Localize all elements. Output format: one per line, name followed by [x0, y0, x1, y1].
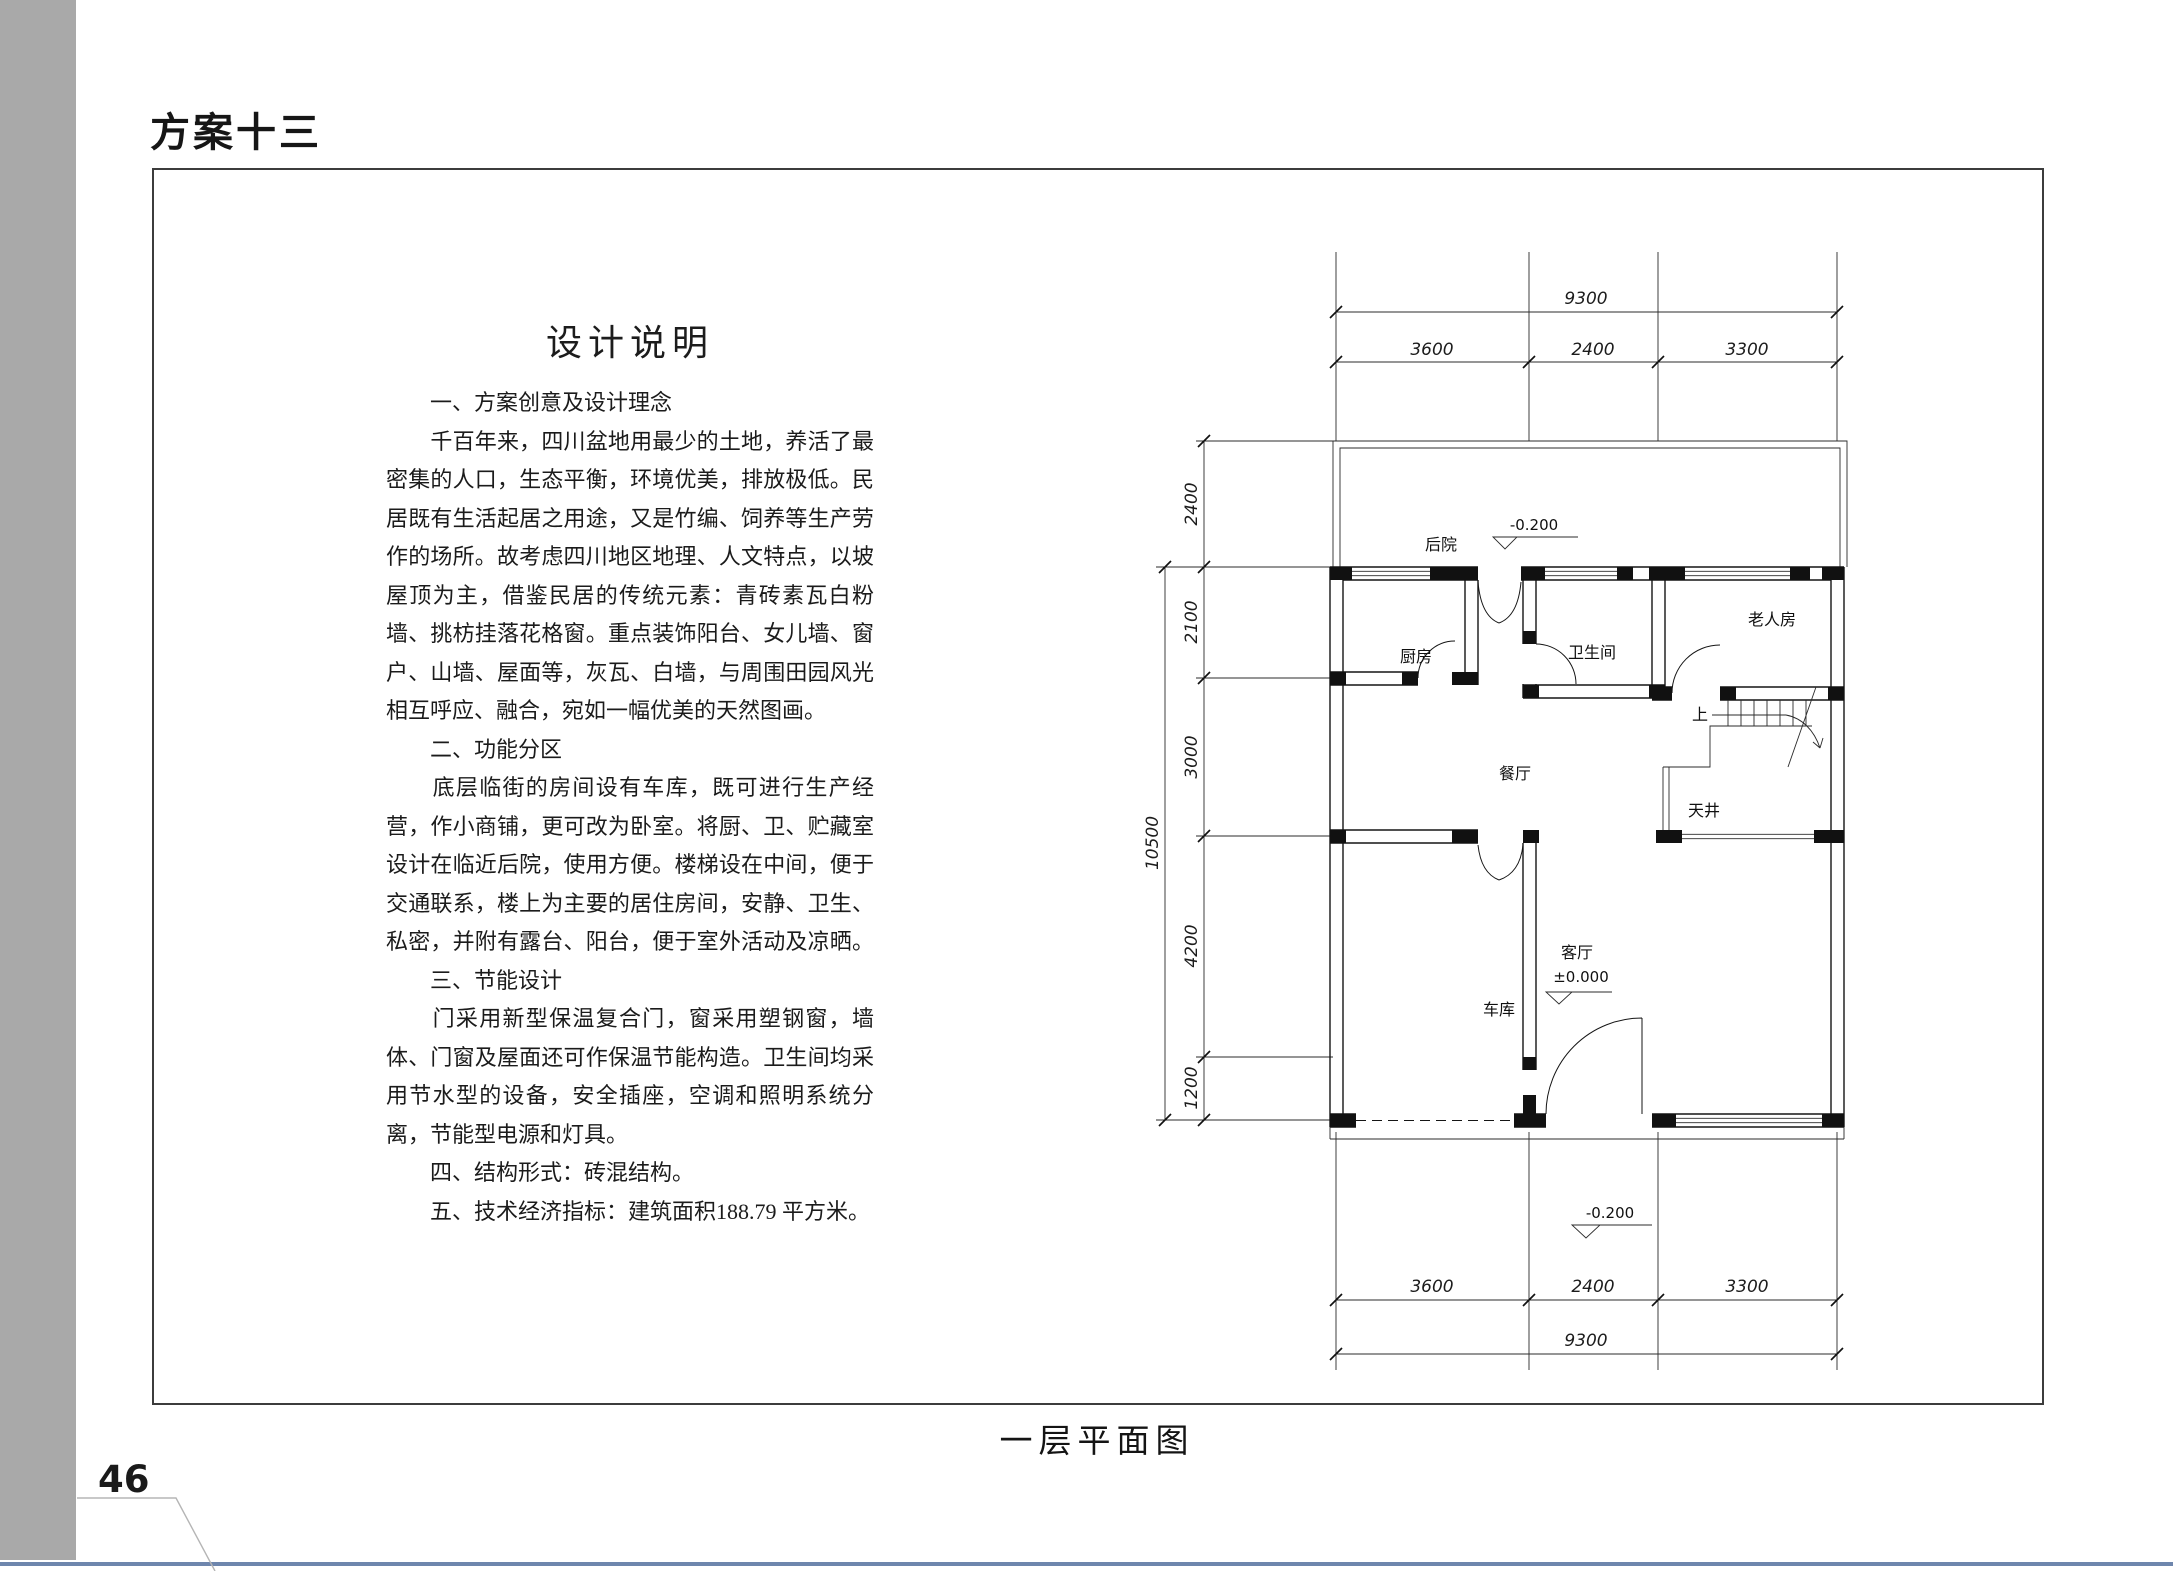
dim-bottom-1: 3600 — [1410, 1277, 1453, 1297]
dim-left-4: 4200 — [1182, 924, 1202, 967]
left-gray-bar — [0, 0, 76, 1560]
bottom-accent-line — [0, 1562, 2173, 1566]
room-labels: 后院 -0.200 厨房 卫生间 老人房 餐厅 天井 上 客厅 ±0.000 车… — [1400, 516, 1796, 1222]
description-line: 墙、挑枋挂落花格窗。重点装饰阳台、女儿墙、窗 — [386, 615, 874, 654]
level-marks — [1493, 537, 1652, 1238]
courtyard-boundary — [1663, 767, 1669, 830]
description-line: 千百年来，四川盆地用最少的土地，养活了最 — [386, 423, 874, 462]
description-line: 相互呼应、融合，宛如一幅优美的天然图画。 — [386, 692, 874, 731]
description-title: 设计说明 — [386, 314, 874, 366]
label-living: 客厅 — [1561, 944, 1593, 962]
label-bathroom: 卫生间 — [1568, 644, 1616, 662]
description-line: 一、方案创意及设计理念 — [386, 384, 874, 423]
description-line: 体、门窗及屋面还可作保温节能构造。卫生间均采 — [386, 1039, 874, 1078]
label-courtyard: 天井 — [1688, 802, 1720, 820]
dim-top-1: 3600 — [1410, 340, 1453, 360]
dim-bottom-overall: 9300 — [1564, 1331, 1607, 1351]
backyard-walls — [1333, 441, 1847, 567]
description-line: 屋顶为主，借鉴民居的传统元素：青砖素瓦白粉 — [386, 577, 874, 616]
dim-bottom-3: 3300 — [1725, 1277, 1768, 1297]
description-line: 密集的人口，生态平衡，环境优美，排放极低。民 — [386, 461, 874, 500]
description-line: 二、功能分区 — [386, 731, 874, 770]
figure-caption: 一层平面图 — [152, 1414, 2042, 1462]
label-elder-room: 老人房 — [1748, 611, 1796, 629]
description-line: 离，节能型电源和灯具。 — [386, 1116, 874, 1155]
description-line: 用节水型的设备，安全插座，空调和照明系统分 — [386, 1077, 874, 1116]
floor-plan-drawing: 9300 3600 2400 3300 2400 2100 3000 4200 … — [1100, 170, 1900, 1380]
dim-top-2: 2400 — [1571, 340, 1614, 360]
stairs — [1663, 687, 1823, 767]
label-kitchen: 厨房 — [1400, 648, 1432, 666]
description-body: 一、方案创意及设计理念 千百年来，四川盆地用最少的土地，养活了最密集的人口，生态… — [386, 384, 874, 1231]
description-line: 私密，并附有露台、阳台，便于室外活动及凉晒。 — [386, 923, 874, 962]
dim-left-1: 2400 — [1182, 482, 1202, 525]
label-stairs-up: 上 — [1692, 706, 1708, 724]
description-line: 四、结构形式：砖混结构。 — [386, 1154, 874, 1193]
description-line: 户、山墙、屋面等，灰瓦、白墙，与周围田园风光 — [386, 654, 874, 693]
description-line: 居既有生活起居之用途，又是竹编、饲养等生产劳 — [386, 500, 874, 539]
dim-left-5: 1200 — [1182, 1066, 1202, 1109]
description-line: 交通联系，楼上为主要的居住房间，安静、卫生、 — [386, 885, 874, 924]
label-backyard: 后院 — [1425, 536, 1457, 554]
description-line: 底层临街的房间设有车库，既可进行生产经 — [386, 769, 874, 808]
dim-top-3: 3300 — [1725, 340, 1768, 360]
dim-left-overall: 10500 — [1143, 816, 1163, 870]
dim-left-2: 2100 — [1182, 600, 1202, 643]
label-garage: 车库 — [1483, 1001, 1515, 1019]
description-line: 五、技术经济指标：建筑面积188.79 平方米。 — [386, 1193, 874, 1232]
dim-top-overall: 9300 — [1564, 289, 1607, 309]
description-line: 作的场所。故考虑四川地区地理、人文特点，以坡 — [386, 538, 874, 577]
description-line: 三、节能设计 — [386, 962, 874, 1001]
description-line: 门采用新型保温复合门，窗采用塑钢窗，墙 — [386, 1000, 874, 1039]
dimension-ticks — [1159, 306, 1843, 1360]
level-entrance: -0.200 — [1586, 1204, 1634, 1222]
description-line: 营，作小商铺，更可改为卧室。将厨、卫、贮藏室 — [386, 808, 874, 847]
plan-header: 方案十三 — [150, 100, 322, 158]
dim-bottom-2: 2400 — [1571, 1277, 1614, 1297]
page-corner-decoration — [75, 1490, 235, 1571]
level-backyard: -0.200 — [1510, 516, 1558, 534]
level-living: ±0.000 — [1553, 968, 1609, 986]
dim-left-3: 3000 — [1182, 735, 1202, 778]
dimension-lines: 9300 3600 2400 3300 2400 2100 3000 4200 … — [1143, 252, 1843, 1370]
description-line: 设计在临近后院，使用方便。楼梯设在中间，便于 — [386, 846, 874, 885]
label-dining: 餐厅 — [1499, 765, 1531, 783]
